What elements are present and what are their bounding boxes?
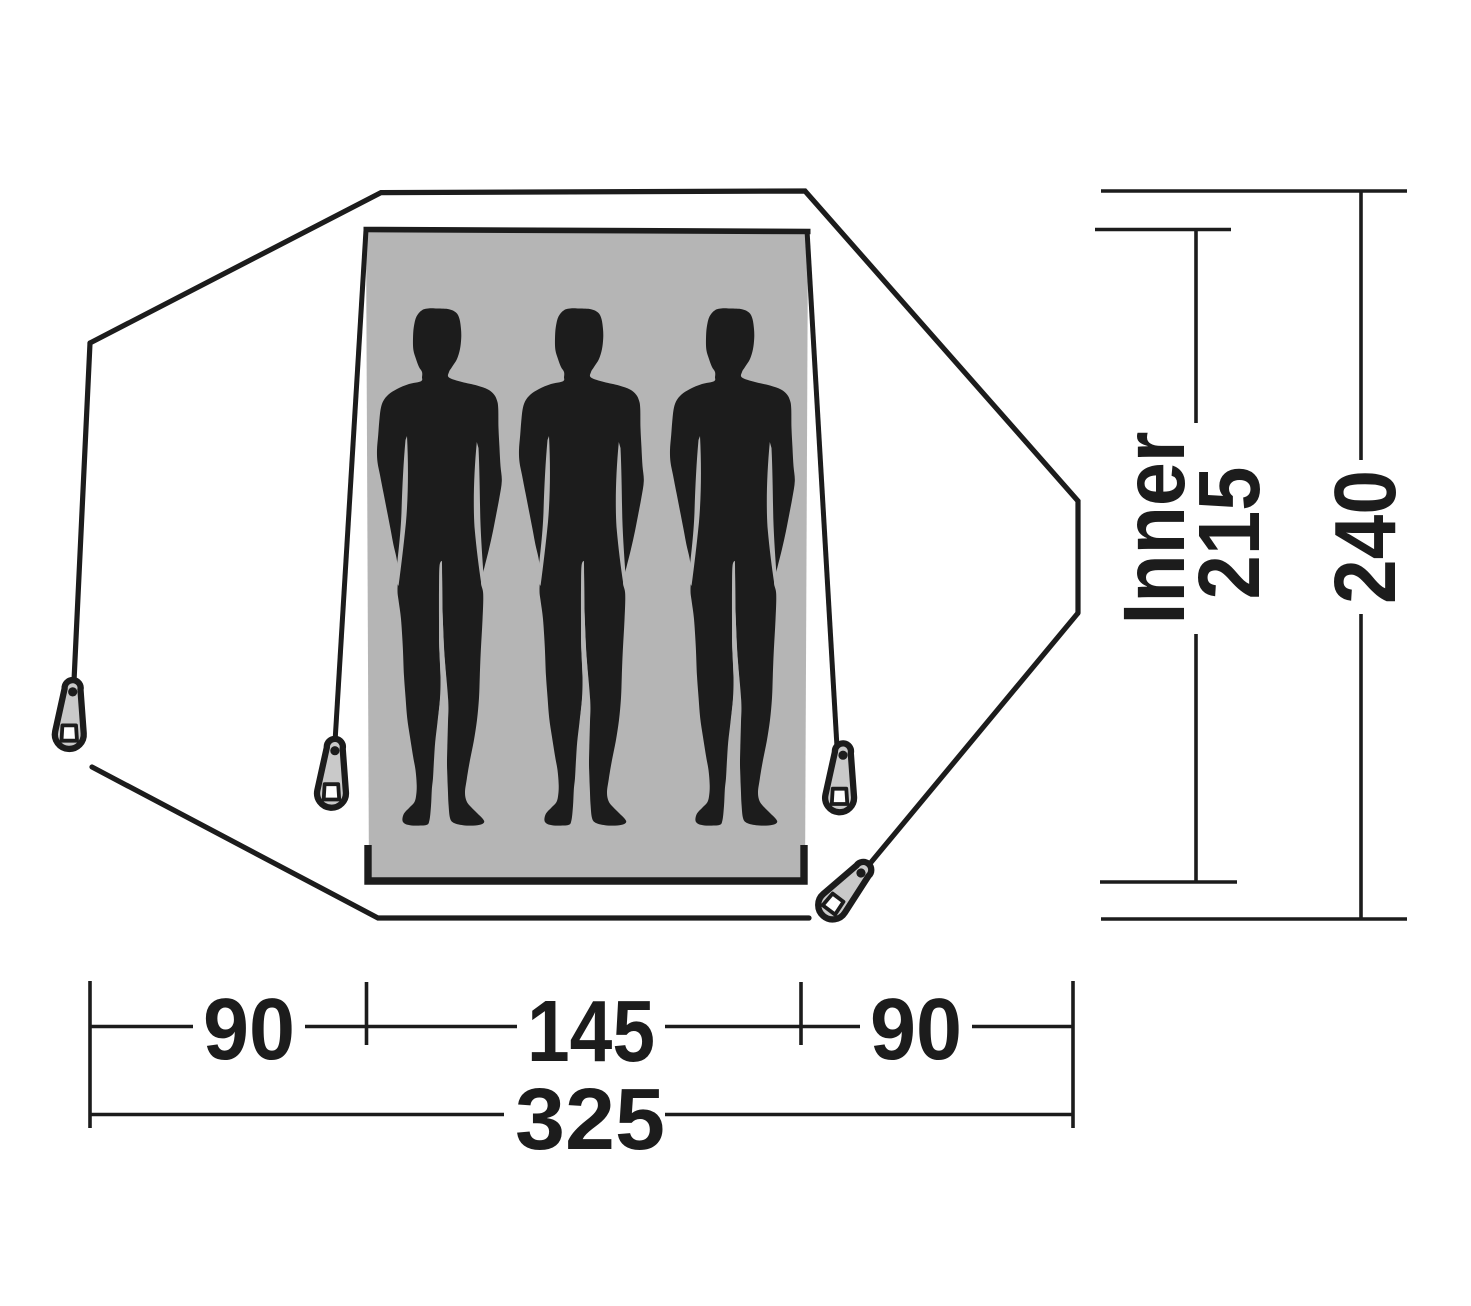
svg-text:215: 215 bbox=[1181, 467, 1278, 600]
svg-text:325: 325 bbox=[515, 1071, 665, 1168]
svg-text:90: 90 bbox=[870, 981, 962, 1078]
svg-text:90: 90 bbox=[203, 981, 295, 1078]
svg-text:145: 145 bbox=[527, 983, 655, 1080]
svg-text:240: 240 bbox=[1317, 470, 1414, 604]
